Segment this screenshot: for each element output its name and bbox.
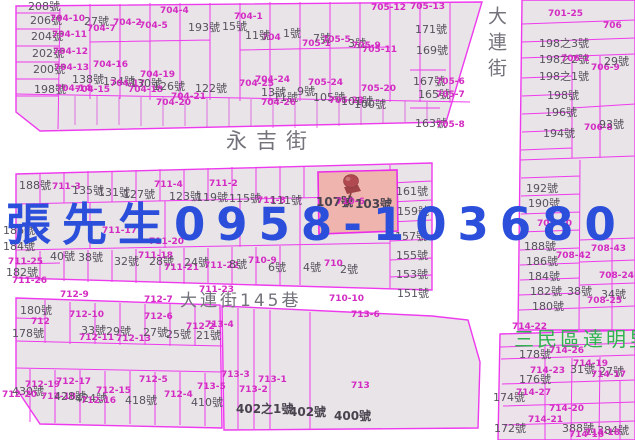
parcel-number-label: 713-6 — [351, 311, 380, 320]
address-label: 11號 — [245, 30, 270, 41]
parcel-number-label: 704-11 — [52, 31, 87, 40]
parcel-number-label: 712-16 — [81, 397, 116, 406]
address-label: 402之1號 — [236, 403, 293, 415]
parcel-number-label: 712-9 — [60, 291, 89, 300]
address-label: 2號 — [340, 264, 358, 275]
address-label: 182號 — [530, 286, 562, 297]
parcel-number-label: 705-8 — [436, 121, 465, 130]
street-label: 永吉街 — [226, 131, 316, 152]
parcel-number-label: 704-12 — [53, 48, 88, 57]
address-label: 198之1號 — [539, 71, 589, 82]
address-label: 172號 — [494, 423, 526, 434]
address-label: 193號 — [188, 22, 220, 33]
address-label: 100號 — [354, 99, 386, 110]
address-label: 184號 — [528, 271, 560, 282]
address-label: 6號 — [268, 262, 286, 273]
parcel-number-label: 704-26 — [261, 99, 296, 108]
address-label: 171號 — [415, 24, 447, 35]
parcel-number-label: 705-12 — [371, 4, 406, 13]
address-label: 178號 — [519, 349, 551, 360]
address-label: 194號 — [543, 128, 575, 139]
parcel-number-label: 705-7 — [436, 91, 465, 100]
address-label: 208號 — [28, 1, 60, 12]
parcel-number-label: 711-23 — [199, 286, 234, 295]
parcel-number-label: 714-16 — [569, 431, 604, 440]
address-label: 198之3號 — [539, 38, 589, 49]
parcel-number-label: 712-5 — [139, 376, 168, 385]
address-label: 198號 — [547, 90, 579, 101]
address-label: 138號 — [72, 74, 104, 85]
parcel-number-label: 712 — [31, 318, 50, 327]
street-label-vertical: 大連街 — [486, 6, 505, 84]
watermark-text: 張先生0958-103680 — [6, 188, 627, 253]
parcel-number-label: 714-21 — [528, 416, 563, 425]
address-label: 126號 — [153, 81, 185, 92]
parcel-number-label: 704-5 — [139, 22, 168, 31]
parcel-number-label: 712-4 — [164, 391, 193, 400]
parcel-number-label: 710-10 — [329, 295, 364, 304]
parcel-number-label: 713-3 — [221, 371, 250, 380]
parcel-number-label: 714-27 — [516, 389, 551, 398]
address-label: 400號 — [334, 410, 371, 422]
parcel-number-label: 705-5 — [322, 36, 351, 45]
address-label: 410號 — [191, 397, 223, 408]
parcel-number-label: 714-20 — [549, 405, 584, 414]
parcel-number-label: 712-7 — [144, 296, 173, 305]
parcel-number-label: 708-42 — [556, 252, 591, 261]
parcel-number-label: 708-24 — [599, 272, 634, 281]
parcel-number-label: 713-5 — [197, 383, 226, 392]
address-label: 93號 — [599, 119, 624, 130]
parcel-number-label: 714-23 — [530, 367, 565, 376]
parcel-number-label: 712-20 — [2, 391, 37, 400]
map-canvas[interactable]: 208號206號704-10204號704-11202號704-12200號70… — [0, 0, 635, 440]
parcel-number-label: 705-6 — [436, 78, 465, 87]
address-label: 27號 — [143, 327, 168, 338]
parcel-number-label: 713-1 — [258, 376, 287, 385]
address-label: 180號 — [20, 305, 52, 316]
address-label: 4號 — [303, 262, 321, 273]
parcel-number-label: 704-13 — [54, 64, 89, 73]
address-label: 1號 — [283, 28, 301, 39]
parcel-number-label: 704-24 — [255, 76, 290, 85]
parcel-number-label: 714-17 — [591, 371, 626, 380]
address-label: 38號 — [78, 252, 103, 263]
parcel-number-label: 708-25 — [587, 297, 622, 306]
parcel-number-label: 706-2 — [561, 55, 590, 64]
address-label: 151號 — [397, 288, 429, 299]
address-label: 29號 — [604, 56, 629, 67]
parcel-number-label: 713-2 — [239, 386, 268, 395]
parcel-number-label: 712-17 — [56, 378, 91, 387]
address-label: 402號 — [289, 406, 326, 418]
parcel-number-label: 706 — [603, 22, 622, 31]
address-label: 180號 — [532, 301, 564, 312]
address-label: 418號 — [125, 395, 157, 406]
parcel-number-label: 712-11 — [79, 334, 114, 343]
address-label: 196號 — [545, 107, 577, 118]
parcel-number-label: 705-11 — [362, 46, 397, 55]
address-label: 15號 — [222, 21, 247, 32]
address-label: 169號 — [416, 45, 448, 56]
address-label: 122號 — [195, 83, 227, 94]
parcel-number-label: 712-2 — [186, 323, 215, 332]
parcel-number-label: 714-26 — [549, 347, 584, 356]
parcel-number-label: 712-10 — [69, 311, 104, 320]
lane-label: 大連街145巷 — [180, 293, 301, 310]
address-label: 8號 — [229, 259, 247, 270]
parcel-number-label: 705-13 — [410, 3, 445, 12]
parcel-number-label: 704-16 — [93, 61, 128, 70]
parcel-number-label: 713 — [351, 382, 370, 391]
parcel-number-label: 705-24 — [308, 79, 343, 88]
parcel-number-label: 704-7 — [87, 25, 116, 34]
parcel-number-label: 704-19 — [140, 71, 175, 80]
parcel-number-label: 704-4 — [160, 7, 189, 16]
parcel-number-label: 704-20 — [156, 99, 191, 108]
parcel-number-label: 712-6 — [144, 313, 173, 322]
parcel-number-label: 704-10 — [50, 15, 85, 24]
parcel-number-label: 711-26 — [12, 277, 47, 286]
address-label: 186號 — [526, 256, 558, 267]
parcel-number-label: 701-25 — [548, 10, 583, 19]
parcel-number-label: 705-20 — [361, 85, 396, 94]
address-label: 153號 — [396, 269, 428, 280]
address-label: 178號 — [12, 328, 44, 339]
parcel-number-label: 704-2 — [113, 19, 142, 28]
address-label: 32號 — [114, 256, 139, 267]
